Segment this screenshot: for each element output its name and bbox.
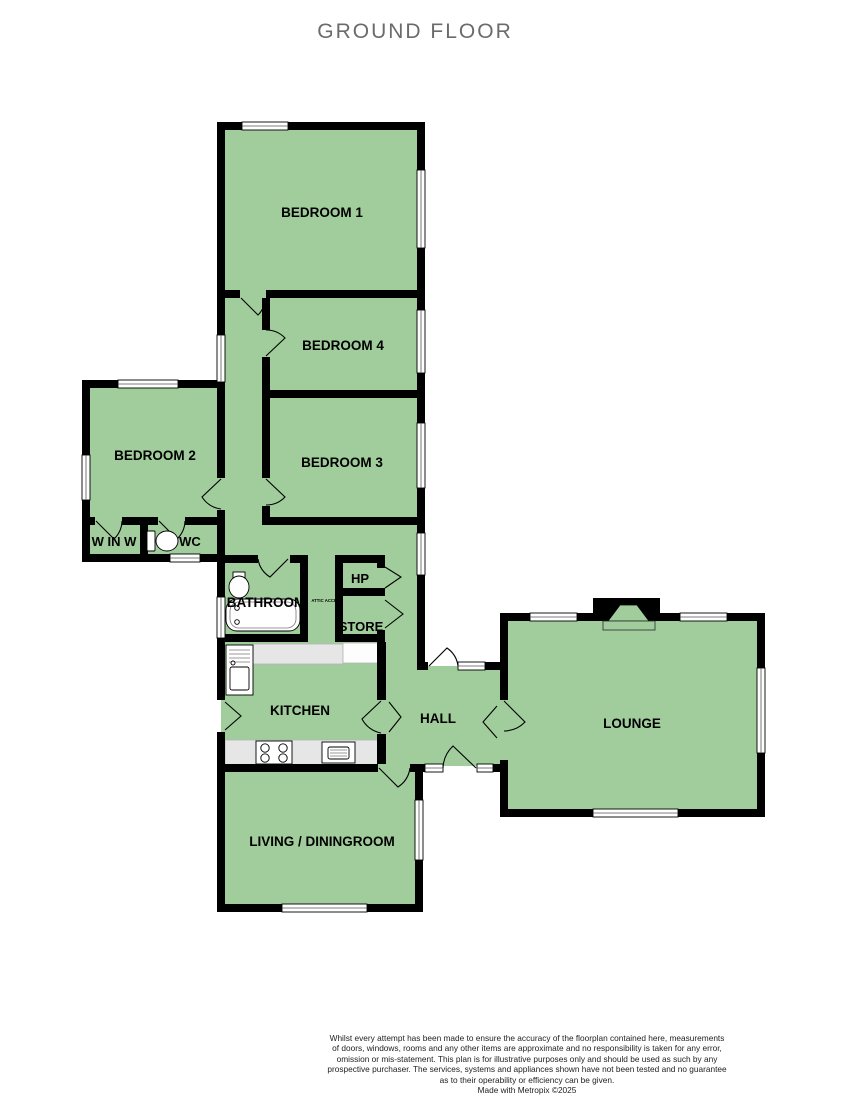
- fireplace-icon: [593, 598, 660, 630]
- window: [217, 597, 225, 638]
- room-label-lounge: LOUNGE: [603, 716, 661, 731]
- hall-floor: [387, 642, 500, 766]
- window: [680, 613, 727, 621]
- window: [757, 668, 765, 753]
- room-label-winw: W IN W: [92, 534, 137, 549]
- counter-top: [253, 644, 343, 664]
- room-label-bedroom-1: BEDROOM 1: [281, 205, 363, 220]
- door-arc: [429, 648, 458, 666]
- window: [170, 554, 200, 562]
- window: [477, 764, 493, 772]
- front-door-threshold: [458, 662, 485, 670]
- window: [242, 122, 288, 130]
- window: [118, 380, 178, 388]
- disclaimer: Whilst every attempt has been made to en…: [327, 1033, 727, 1096]
- room-label-hp: HP: [351, 571, 369, 586]
- window: [417, 423, 425, 488]
- disclaimer-line: prospective purchaser. The services, sys…: [327, 1064, 727, 1074]
- window: [417, 170, 425, 248]
- room-label-bathroom: BATHROOM: [227, 595, 306, 610]
- disclaimer-line: Whilst every attempt has been made to en…: [327, 1033, 727, 1043]
- hob-icon: [256, 741, 292, 764]
- room-label-hall: HALL: [420, 711, 456, 726]
- oven-icon: [322, 742, 355, 763]
- room-label-bedroom-4: BEDROOM 4: [302, 338, 384, 353]
- page-title: GROUND FLOOR: [317, 20, 513, 43]
- room-label-kitchen: KITCHEN: [270, 703, 330, 718]
- room-label-store: STORE: [339, 619, 384, 634]
- window: [425, 764, 443, 772]
- room-label-wc: WC: [179, 534, 201, 549]
- lounge-floor: [504, 617, 761, 813]
- window: [282, 904, 367, 912]
- window: [417, 310, 425, 373]
- toilet-icon: [147, 531, 178, 551]
- kitchen-sink-icon: [226, 645, 253, 695]
- window: [82, 455, 90, 500]
- attic-access-label: ATTIC ACCESS: [311, 598, 342, 603]
- room-label-living-dining: LIVING / DININGROOM: [249, 834, 395, 849]
- counter-corner: [343, 643, 378, 663]
- floorplan-svg: GROUND FLOOR: [0, 0, 846, 1080]
- disclaimer-line: omission or mis-statement. This plan is …: [327, 1054, 727, 1064]
- room-label-bedroom-3: BEDROOM 3: [301, 455, 383, 470]
- window: [417, 533, 425, 575]
- window: [530, 613, 577, 621]
- metropix-credit: Made with Metropix ©2025: [327, 1085, 727, 1095]
- room-label-bedroom-2: BEDROOM 2: [114, 448, 196, 463]
- window: [593, 809, 678, 817]
- window: [415, 800, 423, 860]
- disclaimer-line: of doors, windows, rooms and any other i…: [327, 1043, 727, 1053]
- window: [217, 335, 225, 382]
- disclaimer-line: as to their operability or efficiency ca…: [327, 1075, 727, 1085]
